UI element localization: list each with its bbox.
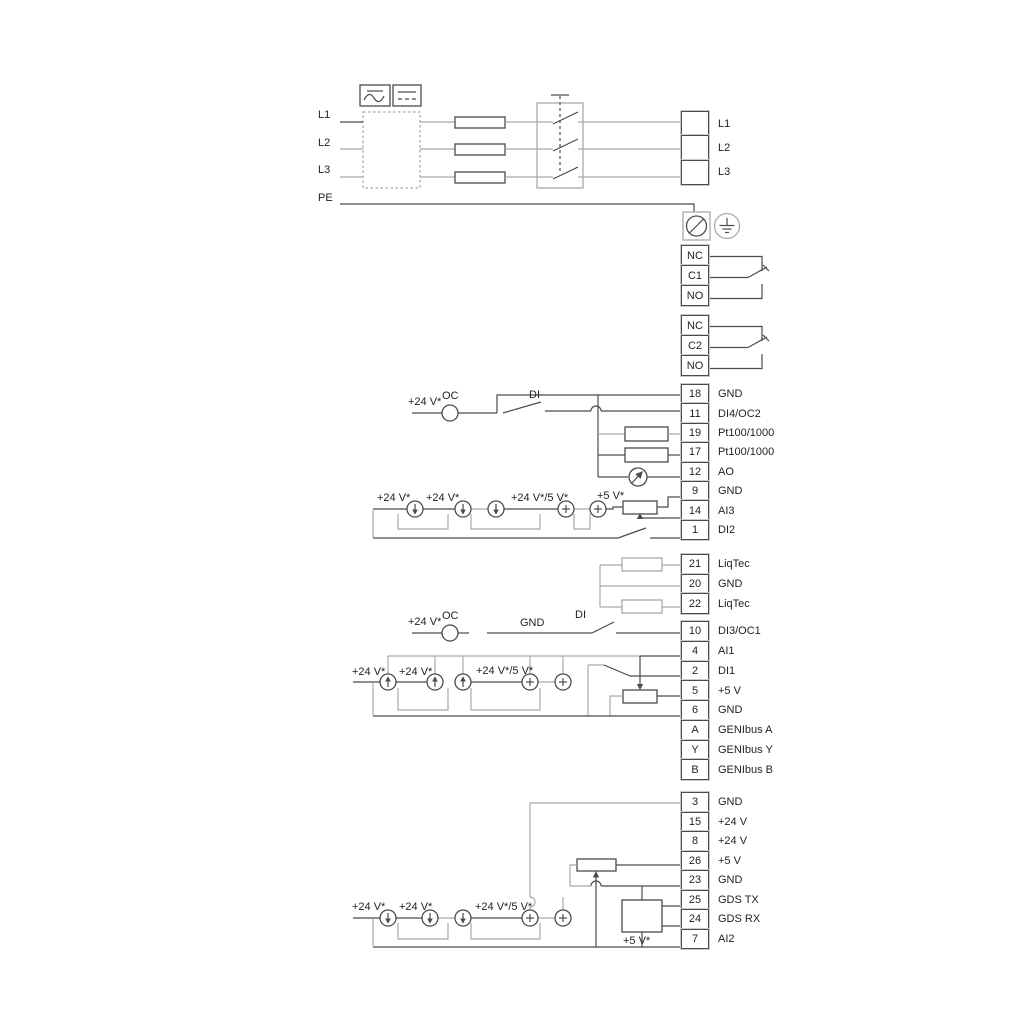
terminal-pin: 23 (681, 870, 709, 891)
terminal-label: AI2 (718, 933, 735, 945)
terminal-pin: 3 (681, 792, 709, 813)
terminal-label: GENIbus Y (718, 744, 773, 756)
terminal-pin: C2 (681, 335, 709, 356)
label-24v: +24 V* (399, 901, 432, 913)
label-24v-5v: +24 V*/5 V* (511, 492, 568, 504)
terminal-label: GDS TX (718, 894, 759, 906)
di1-switch-contact-icon (604, 665, 630, 676)
terminal-pin: 24 (681, 909, 709, 930)
terminal-label: AI1 (718, 645, 735, 657)
fuse-icon (455, 172, 505, 183)
open-collector-icon (442, 625, 458, 641)
label-24v: +24 V* (352, 901, 385, 913)
terminal-pin: 7 (681, 929, 709, 950)
label-oc: OC (442, 390, 459, 402)
terminal-label: GND (718, 578, 742, 590)
terminal-pin: 19 (681, 423, 709, 443)
terminal-label: DI3/OC1 (718, 625, 761, 637)
potentiometer-icon (623, 501, 657, 514)
terminal-label: GND (718, 388, 742, 400)
terminal-label: GND (718, 796, 742, 808)
terminal-pin: NO (681, 285, 709, 306)
mains-input-label: L2 (318, 137, 330, 149)
terminal-pin: 8 (681, 831, 709, 852)
label-di: DI (575, 609, 586, 621)
terminal-pin: Y (681, 740, 709, 761)
terminal-pin: A (681, 720, 709, 741)
fuse-icon (455, 144, 505, 155)
liqtec-sensor-icon (622, 558, 662, 571)
terminal-pin: C1 (681, 265, 709, 286)
pt100-resistor-icon (625, 448, 668, 462)
terminal-label: L1 (718, 118, 730, 130)
ai2-option-row (353, 803, 681, 947)
terminal-block-mains-out: L1 L2 L3 (681, 112, 730, 185)
label-24v: +24 V* (426, 492, 459, 504)
mains-input-labels: L1 L2 L3 PE (318, 109, 333, 219)
terminal-label: GND (718, 485, 742, 497)
terminal-label: GDS RX (718, 913, 760, 925)
terminal-block-liqtec: 21 LiqTec 20 GND 22 LiqTec (681, 555, 750, 614)
terminal-pin: 6 (681, 700, 709, 721)
terminal-label: LiqTec (718, 558, 750, 570)
terminal-block-relay2: NC C2 NO (681, 316, 709, 376)
terminal-label: +5 V (718, 685, 741, 697)
terminal-pin: 2 (681, 661, 709, 682)
label-gnd: GND (520, 617, 544, 629)
terminal-label: Pt100/1000 (718, 446, 774, 458)
terminal-label: GENIbus B (718, 764, 773, 776)
terminal-label: +24 V (718, 835, 747, 847)
terminal-label: +24 V (718, 816, 747, 828)
terminal-label: GND (718, 704, 742, 716)
mains-input-label: L3 (318, 164, 330, 176)
gds-sensor-box (622, 900, 662, 932)
di2-switch-contact-icon (618, 528, 646, 538)
label-24v: +24 V* (352, 666, 385, 678)
di-switch-contact-icon (503, 402, 541, 413)
terminal-pin: NC (681, 245, 709, 266)
terminal-label: L2 (718, 142, 730, 154)
mains-input-label: PE (318, 192, 333, 204)
label-24v: +24 V* (408, 616, 441, 628)
terminal-pin: B (681, 759, 709, 780)
relay2-contact (709, 327, 769, 369)
terminal-block-io-bottom: 3 GND 15 +24 V 8 +24 V 26 +5 V 23 GND 25… (681, 793, 760, 949)
terminal-pin: 1 (681, 520, 709, 540)
ac-symbol-icon (360, 85, 390, 106)
dc-symbol-icon (393, 85, 421, 106)
potentiometer-icon (623, 690, 657, 703)
terminal-pin: 14 (681, 500, 709, 520)
label-24v: +24 V* (377, 492, 410, 504)
earth-ground-icon (715, 214, 740, 239)
di-switch-contact-icon (592, 622, 614, 633)
terminal-label: L3 (718, 166, 730, 178)
terminal-block-io-mid: 10 DI3/OC1 4 AI1 2 DI1 5 +5 V 6 GND A GE… (681, 622, 773, 780)
terminal-pin: 26 (681, 851, 709, 872)
terminal-pin: 10 (681, 621, 709, 642)
terminal-pin (681, 160, 709, 185)
liqtec-wiring (600, 558, 681, 613)
terminal-label: LiqTec (718, 598, 750, 610)
mains-input-label: L1 (318, 109, 330, 121)
label-5v: +5 V* (597, 490, 624, 502)
terminal-label: AI3 (718, 505, 735, 517)
terminal-block-io-top: 18 GND 11 DI4/OC2 19 Pt100/1000 17 Pt100… (681, 385, 774, 540)
potentiometer-icon (577, 859, 616, 871)
terminal-pin: 11 (681, 403, 709, 423)
terminal-label: DI4/OC2 (718, 408, 761, 420)
label-5v: +5 V* (623, 935, 650, 947)
wiring-diagram-page: { "diagram": { "mains": { "inputs": [{"l… (0, 0, 1024, 1024)
label-24v: +24 V* (399, 666, 432, 678)
relay1-contact (709, 257, 769, 299)
mains-wiring (340, 85, 740, 240)
terminal-pin: 22 (681, 593, 709, 614)
pt100-resistor-icon (625, 427, 668, 441)
terminal-pin: 4 (681, 641, 709, 662)
oc1-row (412, 622, 681, 641)
terminal-label: DI2 (718, 524, 735, 536)
terminal-pin: 12 (681, 462, 709, 482)
terminal-pin: 15 (681, 812, 709, 833)
open-collector-icon (442, 405, 458, 421)
screw-terminal-icon (683, 212, 710, 240)
terminal-pin: 18 (681, 384, 709, 404)
terminal-pin: 21 (681, 554, 709, 575)
disconnect-switch-icon (537, 95, 583, 188)
label-24v-5v: +24 V*/5 V* (475, 901, 532, 913)
label-24v-5v: +24 V*/5 V* (476, 665, 533, 677)
wiring-lines-layer (0, 0, 1024, 1024)
fuse-icon (455, 117, 505, 128)
label-24v: +24 V* (408, 396, 441, 408)
terminal-label: DI1 (718, 665, 735, 677)
terminal-label: Pt100/1000 (718, 427, 774, 439)
terminal-pin: 9 (681, 481, 709, 501)
analog-output-meter-icon (629, 468, 647, 486)
terminal-pin: 25 (681, 890, 709, 911)
terminal-pin: 20 (681, 574, 709, 595)
terminal-label: +5 V (718, 855, 741, 867)
label-di: DI (529, 389, 540, 401)
terminal-label: GND (718, 874, 742, 886)
terminal-label: GENIbus A (718, 724, 772, 736)
terminal-pin: NO (681, 355, 709, 376)
terminal-pin: 5 (681, 680, 709, 701)
io-top-wiring (412, 395, 681, 486)
terminal-label: AO (718, 466, 734, 478)
converter-box (363, 112, 420, 188)
terminal-pin: 17 (681, 442, 709, 462)
liqtec-sensor-icon (622, 600, 662, 613)
terminal-pin: NC (681, 315, 709, 336)
label-oc: OC (442, 610, 459, 622)
terminal-pin (681, 111, 709, 136)
terminal-block-relay1: NC C1 NO (681, 246, 709, 306)
terminal-pin (681, 135, 709, 160)
